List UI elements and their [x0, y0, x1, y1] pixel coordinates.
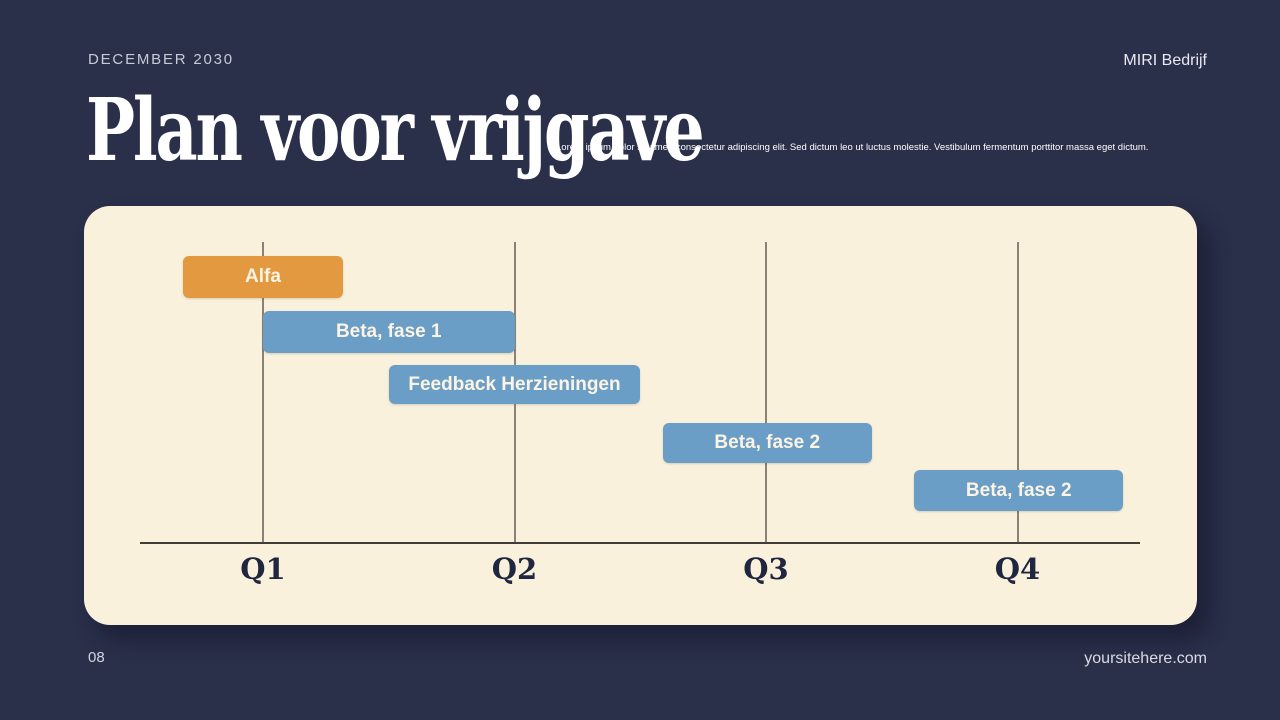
gantt-bar: Beta, fase 1: [263, 311, 515, 353]
presentation-slide: DECEMBER 2030 MIRI Bedrijf Lorem ipsum d…: [0, 0, 1280, 720]
gantt-bar-label: Feedback Herzieningen: [408, 374, 620, 396]
gantt-bar: Beta, fase 2: [914, 470, 1123, 511]
page-number: 08: [88, 649, 105, 666]
gantt-chart-panel: Q1Q2Q3Q4AlfaBeta, fase 1Feedback Herzien…: [84, 206, 1197, 625]
timeline-axis: [140, 542, 1140, 544]
gantt-bar: Feedback Herzieningen: [389, 365, 641, 404]
gantt-bar-label: Beta, fase 1: [336, 321, 442, 343]
axis-label-q4: Q4: [958, 552, 1078, 586]
gantt-bar-label: Beta, fase 2: [714, 432, 820, 454]
axis-label-q2: Q2: [455, 552, 575, 586]
gantt-bar-label: Beta, fase 2: [966, 480, 1072, 502]
slide-date: DECEMBER 2030: [88, 51, 234, 68]
axis-label-q1: Q1: [203, 552, 323, 586]
gantt-bar: Beta, fase 2: [663, 423, 872, 463]
gantt-bar-label: Alfa: [245, 266, 281, 288]
gantt-bar: Alfa: [183, 256, 344, 298]
quarter-gridline: [765, 242, 767, 542]
website-link: yoursitehere.com: [1084, 650, 1207, 668]
company-name: MIRI Bedrijf: [1123, 52, 1207, 70]
slide-title: Plan voor vrijgave: [86, 88, 702, 174]
axis-label-q3: Q3: [706, 552, 826, 586]
